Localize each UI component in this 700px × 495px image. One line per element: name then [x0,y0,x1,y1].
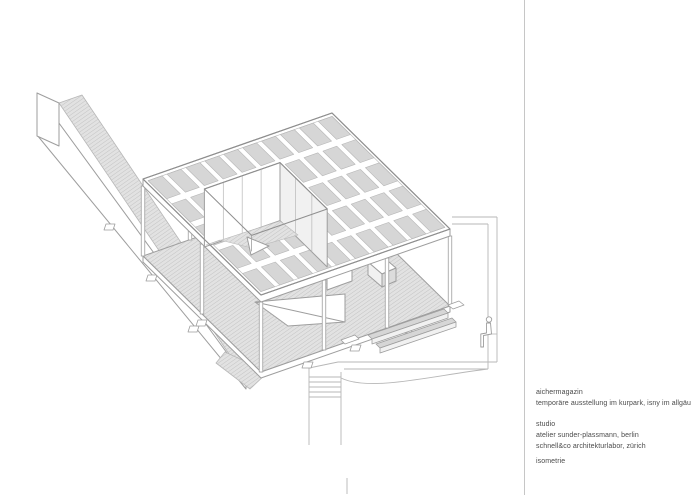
studio-office-1: atelier sunder-plassmann, berlin [536,430,696,441]
project-description: temporäre ausstellung im kurpark, isny i… [536,398,696,409]
path-edge-curve [341,369,488,384]
ramp-foot [104,224,115,230]
drawing-sheet: aichermagazin temporäre ausstellung im k… [0,0,700,495]
column [448,236,452,306]
floor-foot [302,362,313,368]
figure-head [486,317,491,322]
column [259,302,263,372]
floor-foot [196,320,207,326]
view-label: isometrie [536,456,696,467]
column [200,244,204,314]
boundary-line [309,362,338,368]
column [322,280,326,350]
floor-foot [350,345,361,351]
project-name: aichermagazin [536,387,696,398]
titleblock-spacer [536,409,696,419]
sitting-figure [481,317,497,347]
studio-office-2: schnell&co architekturlabor, zürich [536,441,696,452]
figure-body [481,323,492,347]
ramp-foot [146,275,157,281]
sheet-divider-line [524,0,525,495]
titleblock: aichermagazin temporäre ausstellung im k… [536,387,696,467]
ramp-foot [188,326,199,332]
studio-label: studio [536,419,696,430]
column [385,258,389,328]
column [141,186,145,256]
